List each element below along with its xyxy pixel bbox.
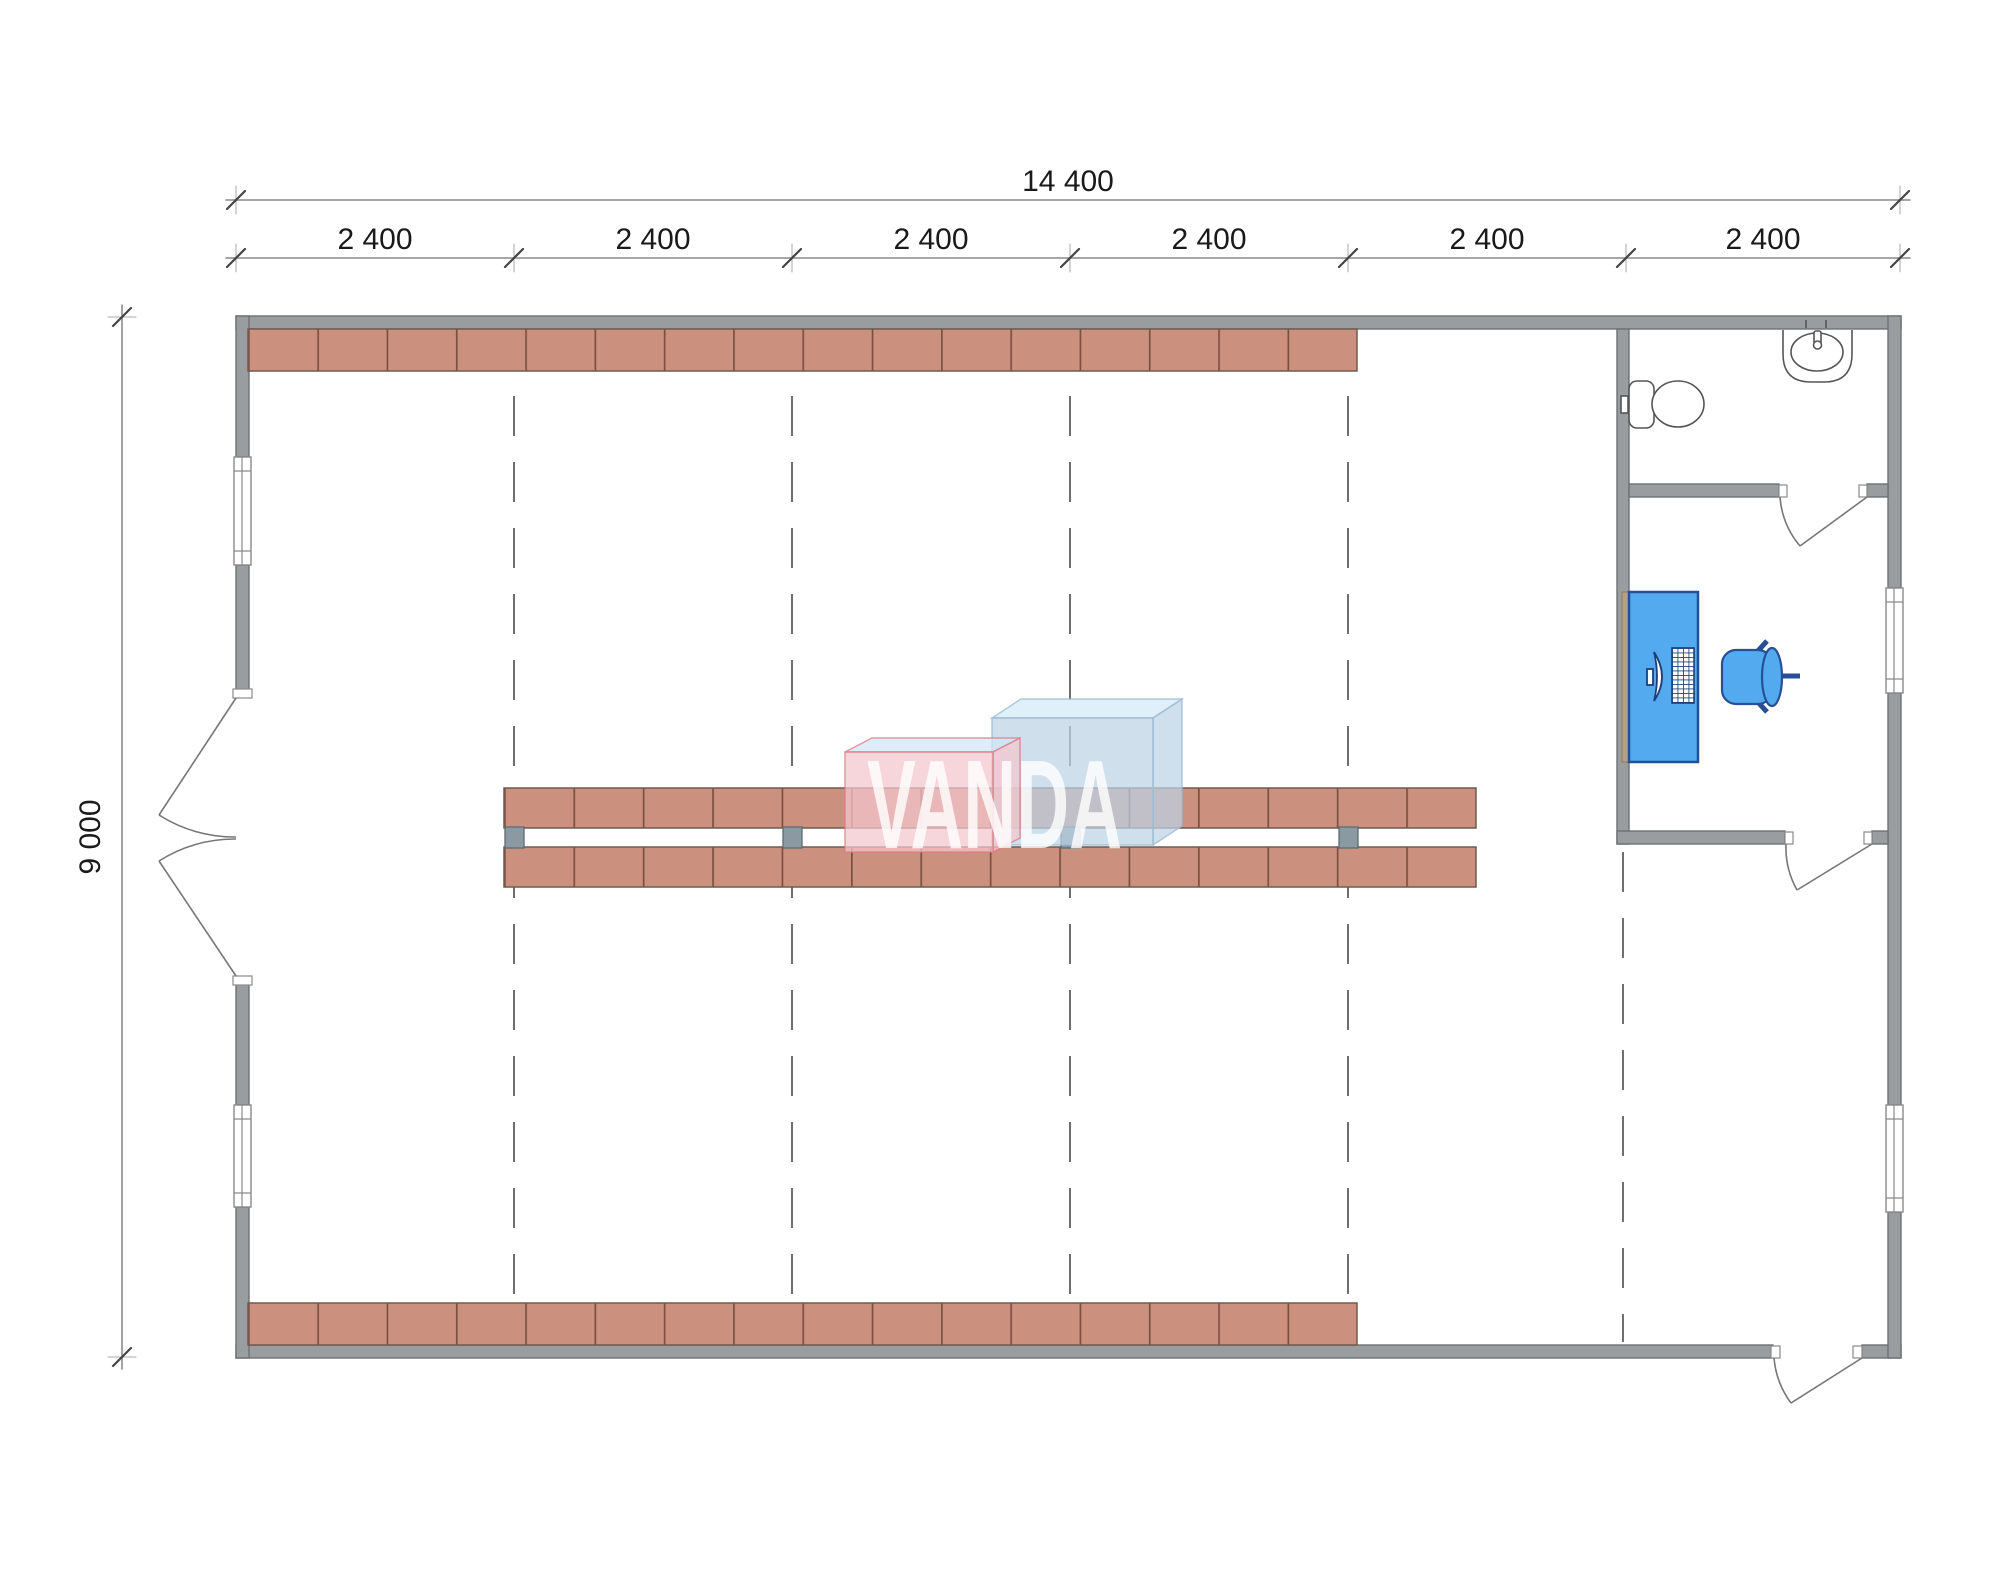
door-jamb [1771,1346,1780,1358]
office-wall-stub [1872,831,1888,844]
window-left-upper [234,457,251,565]
shelf-row-bottom-wall [248,1303,1357,1345]
wall-left-seg4 [236,1207,249,1358]
toilet-bowl [1652,381,1704,427]
bathroom-wall [1629,484,1779,497]
shelf-post [1339,827,1358,848]
logo-box-blue-top [992,699,1182,718]
logo-box-blue-side [1153,699,1182,845]
door-jamb [1859,485,1867,497]
toilet-flush-plate [1621,396,1628,413]
wall-left-seg3 [236,977,249,1105]
window-right-lower [1886,1105,1903,1212]
door-jamb [1853,1346,1862,1358]
wall-right-seg2 [1888,693,1901,1105]
office-wall [1617,831,1785,844]
monitor-stand [1647,669,1653,685]
door-jamb [1864,832,1872,844]
logo-wordmark: VANDA [867,734,1122,875]
floor-plan-page: 14 400 2 400 2 400 2 400 2 400 2 400 2 4… [0,0,2000,1574]
keyboard-icon [1672,648,1694,703]
shelf-post [505,827,524,848]
bay-dimension-label: 2 400 [1449,223,1524,256]
wall-top [236,316,1901,329]
wall-bottom-left-span [236,1345,1773,1358]
bay-dimension-label: 2 400 [893,223,968,256]
door-jamb [233,976,252,985]
door-jamb [1779,485,1787,497]
floor-plan-canvas: 14 400 2 400 2 400 2 400 2 400 2 400 2 4… [0,0,2000,1574]
bay-dimension-label: 2 400 [1171,223,1246,256]
door-jamb [233,689,252,698]
toilet-icon [1621,381,1704,428]
bay-dimension-label: 2 400 [1725,223,1800,256]
bathroom-wall-stub [1867,484,1888,497]
wall-right-seg3 [1888,1212,1901,1358]
wall-left-seg1 [236,316,249,457]
door-jamb [1785,832,1793,844]
wall-right-seg1 [1888,316,1901,588]
toilet-tank [1629,381,1654,428]
wall-left-seg2 [236,565,249,697]
total-width-label: 14 400 [1022,165,1114,198]
total-height-label: 9 000 [74,799,107,874]
sink-faucet-head [1814,341,1822,349]
window-left-lower [234,1105,251,1207]
shelf-row-top-wall [248,329,1357,371]
chair-backrest [1762,648,1782,706]
bay-dimension-label: 2 400 [615,223,690,256]
shelf-post [783,827,802,848]
bay-dimension-label: 2 400 [337,223,412,256]
window-right-office [1886,588,1903,693]
